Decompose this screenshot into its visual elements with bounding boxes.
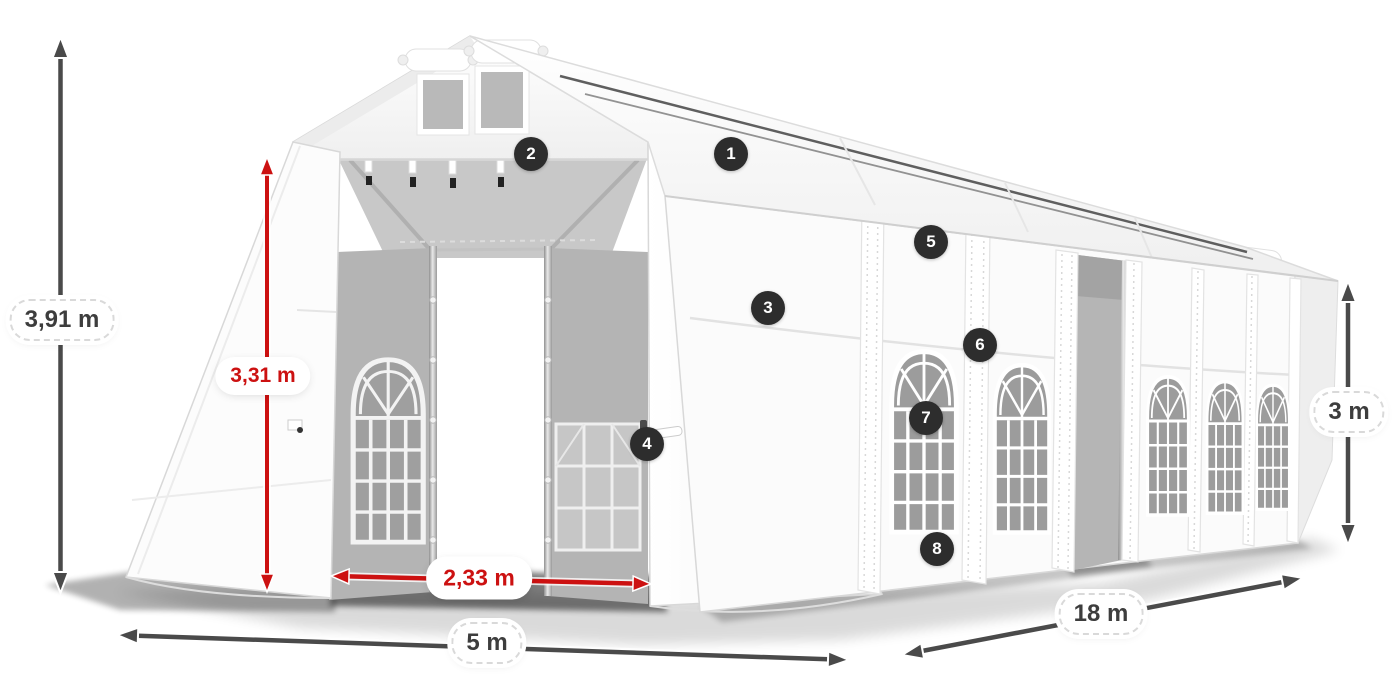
- overall-height-label: 3,91 m: [10, 299, 115, 341]
- feature-marker-5: 5: [914, 225, 948, 259]
- entrance-width-label: 2,33 m: [429, 560, 529, 597]
- interior-ceiling: [337, 156, 648, 258]
- side-window-1: [892, 352, 957, 532]
- feature-marker-2: 2: [514, 137, 548, 171]
- feature-marker-8: 8: [920, 532, 954, 566]
- tent-dimension-diagram: 3,91 m 3,31 m 2,33 m 5 m 18 m 3 m 1 2 3 …: [0, 0, 1400, 700]
- interior-window-grid: [556, 424, 640, 550]
- pole-clamps: [430, 297, 551, 543]
- front-width-label: 5 m: [451, 622, 522, 664]
- side-window-2: [995, 365, 1049, 532]
- entrance-height-label: 3,31 m: [218, 360, 307, 392]
- feature-marker-3: 3: [751, 291, 785, 325]
- side-door-opening: [1074, 255, 1130, 570]
- feature-marker-1: 1: [714, 137, 748, 171]
- tent-illustration: [0, 0, 1400, 700]
- side-window-4: [1207, 382, 1243, 514]
- side-window-5: [1257, 385, 1289, 509]
- feature-marker-6: 6: [963, 328, 997, 362]
- side-height-label: 3 m: [1313, 391, 1384, 433]
- interior-window: [353, 360, 423, 542]
- feature-marker-7: 7: [909, 401, 943, 435]
- tent-interior: [329, 156, 648, 604]
- side-length-label: 18 m: [1059, 593, 1144, 635]
- side-window-3: [1148, 377, 1189, 515]
- feature-marker-4: 4: [630, 427, 664, 461]
